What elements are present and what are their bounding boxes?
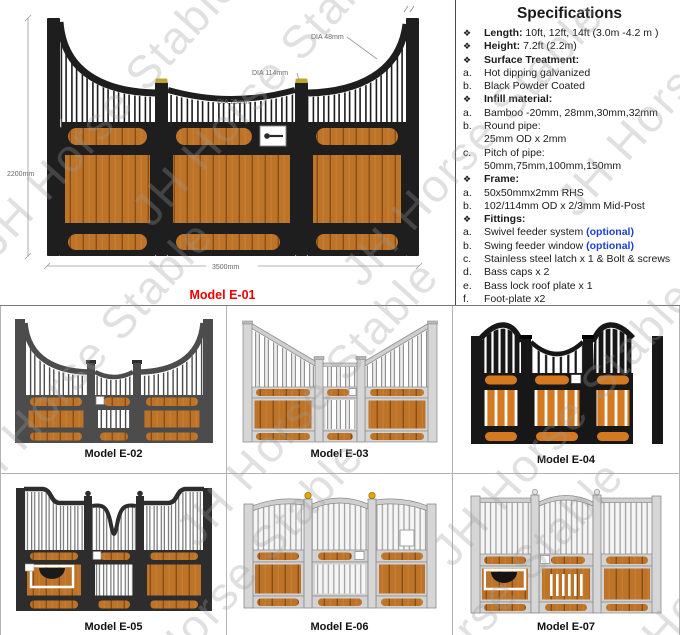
brass-ball-cap xyxy=(368,492,374,498)
spec-item: ❖Infill material: xyxy=(463,93,676,106)
model-card-e03: Model E-03 xyxy=(227,306,453,474)
swivel-feeder xyxy=(485,570,525,589)
post-finial xyxy=(532,489,537,494)
swivel-feeder xyxy=(25,564,73,587)
stable-front-drawing-e06 xyxy=(234,478,446,618)
spec-title: Specifications xyxy=(463,5,676,23)
dim-width-label: 3500mm xyxy=(212,264,239,271)
top-section: 2200mm 3500mm DIA 48mm DIA 114mm DIA 25m… xyxy=(0,0,680,305)
dia-mid-post-label: DIA 114mm xyxy=(252,70,288,77)
post-finial xyxy=(594,489,599,494)
spec-item: c.Stainless steel latch x 1 & Bolt & scr… xyxy=(463,253,676,266)
model-e01-label: Model E-01 xyxy=(0,288,445,302)
spec-item: 25mm OD x 2mm xyxy=(463,133,676,146)
spec-item: ❖Length: 10ft, 12ft, 14ft (3.0m -4.2 m ) xyxy=(463,27,676,40)
spec-item: a.50x50mmx2mm RHS xyxy=(463,187,676,200)
model-label-e07: Model E-07 xyxy=(537,621,595,633)
spec-item: ❖Surface Treatment: xyxy=(463,54,676,67)
brass-cap xyxy=(156,79,168,84)
stable-front-drawing-e03 xyxy=(235,311,445,445)
spec-item: b.Swing feeder window (optional) xyxy=(463,240,676,253)
main-drawing-area: 2200mm 3500mm DIA 48mm DIA 114mm DIA 25m… xyxy=(0,0,455,305)
brass-cap xyxy=(296,79,308,84)
spec-item: a.Bamboo -20mm, 28mm,30mm,32mm xyxy=(463,107,676,120)
model-card-e04: Model E-04 xyxy=(453,306,680,474)
models-grid: Model E-02 xyxy=(0,305,680,635)
model-label-e04: Model E-04 xyxy=(537,454,595,466)
model-card-e05: Model E-05 xyxy=(0,474,227,635)
dia-pipe-label: DIA 25mm xyxy=(217,99,250,106)
door-latch xyxy=(355,552,364,560)
spec-item: f.Foot-plate x2 xyxy=(463,293,676,305)
spec-item: e.Bass lock roof plate x 1 xyxy=(463,280,676,293)
door-latch xyxy=(260,126,286,146)
model-card-e02: Model E-02 xyxy=(0,306,227,474)
spec-item: c.Pitch of pipe: 50mm,75mm,100mm,150mm xyxy=(463,147,676,174)
post-finial xyxy=(137,491,143,497)
spec-item: ❖Height: 7.2ft (2.2m) xyxy=(463,40,676,53)
spec-item: ❖Fittings: xyxy=(463,213,676,226)
door-latch xyxy=(541,556,550,564)
model-card-e07: Model E-07 xyxy=(453,474,680,635)
door-latch xyxy=(93,552,101,560)
spec-item: b.Round pipe: xyxy=(463,120,676,133)
post-finial xyxy=(85,491,91,497)
spec-item: b.102/114mm OD x 2/3mm Mid-Post xyxy=(463,200,676,213)
model-label-e06: Model E-06 xyxy=(310,621,368,633)
spec-item: ❖Frame: xyxy=(463,173,676,186)
door-latch xyxy=(349,389,356,396)
spec-item: a.Swivel feeder system (optional) xyxy=(463,226,676,239)
stable-front-drawing-e02 xyxy=(9,311,219,445)
stable-front-drawing-e01: 2200mm 3500mm DIA 48mm DIA 114mm DIA 25m… xyxy=(6,2,451,282)
model-card-e06: Model E-06 xyxy=(227,474,453,635)
swing-feeder-window xyxy=(400,530,414,546)
stable-front-drawing-e04 xyxy=(461,311,671,451)
model-label-e03: Model E-03 xyxy=(310,448,368,460)
brass-ball-cap xyxy=(304,492,310,498)
door-latch xyxy=(571,375,581,384)
spec-sheet-page: 2200mm 3500mm DIA 48mm DIA 114mm DIA 25m… xyxy=(0,0,680,635)
spec-panel: Specifications ❖Length: 10ft, 12ft, 14ft… xyxy=(455,0,680,305)
model-label-e05: Model E-05 xyxy=(84,621,142,633)
stable-front-drawing-e07 xyxy=(461,478,671,618)
spec-item: b.Black Powder Coated xyxy=(463,80,676,93)
dim-height-label: 2200mm xyxy=(7,171,34,178)
spec-item: a.Hot dipping galvanized xyxy=(463,67,676,80)
stable-front-drawing-e05 xyxy=(8,478,220,618)
model-label-e02: Model E-02 xyxy=(84,448,142,460)
spec-item: d.Bass caps x 2 xyxy=(463,266,676,279)
dia-top-label: DIA 48mm xyxy=(311,34,344,41)
door-latch xyxy=(96,397,104,405)
